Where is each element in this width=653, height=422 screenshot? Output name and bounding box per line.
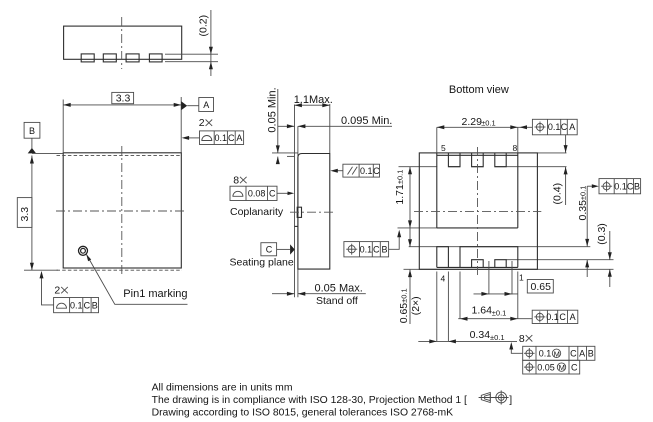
svg-text:0.1: 0.1 <box>215 133 228 143</box>
svg-text:0.1: 0.1 <box>360 244 373 254</box>
svg-text:2: 2 <box>54 285 60 297</box>
svg-text:C: C <box>373 166 380 176</box>
svg-text:M: M <box>559 363 565 372</box>
svg-text:C: C <box>627 181 634 191</box>
svg-text:Coplanarity: Coplanarity <box>230 206 284 218</box>
svg-text:2.29: 2.29 <box>462 116 483 128</box>
svg-text:The drawing is in compliance w: The drawing is in compliance with ISO 12… <box>152 395 467 406</box>
svg-text:0.1: 0.1 <box>548 122 561 132</box>
svg-text:0.05: 0.05 <box>537 362 555 372</box>
svg-text:A: A <box>236 133 242 143</box>
svg-text:8: 8 <box>519 333 525 345</box>
svg-text:C: C <box>571 362 578 372</box>
svg-text:C: C <box>570 349 577 359</box>
svg-text:]: ] <box>509 395 512 406</box>
svg-text:3.3: 3.3 <box>19 207 31 222</box>
svg-text:C: C <box>228 133 235 143</box>
svg-text:0.05 Min.: 0.05 Min. <box>267 87 279 132</box>
svg-text:1.71±0.1: 1.71±0.1 <box>394 170 406 205</box>
svg-text:Pin1 marking: Pin1 marking <box>123 288 187 300</box>
svg-text:B: B <box>634 181 640 191</box>
svg-text:8: 8 <box>513 143 518 153</box>
svg-text:0.65: 0.65 <box>531 281 552 293</box>
svg-text:3.3: 3.3 <box>116 93 131 105</box>
svg-text:0.08: 0.08 <box>248 189 266 199</box>
svg-text:0.1: 0.1 <box>360 166 373 176</box>
svg-text:±0.1: ±0.1 <box>481 118 496 127</box>
svg-text:1: 1 <box>519 272 524 282</box>
svg-text:0.095 Min.: 0.095 Min. <box>341 115 392 127</box>
svg-text:(0.3): (0.3) <box>596 223 608 245</box>
svg-text:C: C <box>373 244 380 254</box>
svg-text:4: 4 <box>441 273 446 283</box>
svg-text:A: A <box>579 349 585 359</box>
svg-text:Drawing according to ISO 8015,: Drawing according to ISO 8015, general t… <box>152 408 454 419</box>
svg-text:±0.1: ±0.1 <box>492 309 507 318</box>
svg-text:5: 5 <box>441 143 446 153</box>
svg-text:C: C <box>561 122 568 132</box>
svg-text:0.1: 0.1 <box>539 349 552 359</box>
svg-text:0.1: 0.1 <box>70 300 83 310</box>
svg-text:C: C <box>559 312 566 322</box>
svg-text:8: 8 <box>233 175 239 187</box>
svg-text:0.65±0.1: 0.65±0.1 <box>398 288 410 323</box>
svg-text:(0.2): (0.2) <box>198 15 210 37</box>
svg-text:B: B <box>381 244 387 254</box>
svg-text:C: C <box>84 300 91 310</box>
svg-text:A: A <box>569 122 575 132</box>
svg-text:Seating plane: Seating plane <box>230 257 294 269</box>
svg-text:B: B <box>29 126 35 136</box>
svg-text:A: A <box>203 100 209 110</box>
svg-text:(2×): (2×) <box>410 296 422 315</box>
svg-text:(0.4): (0.4) <box>552 183 564 205</box>
svg-text:B: B <box>588 349 594 359</box>
svg-text:±0.1: ±0.1 <box>490 333 505 342</box>
svg-text:1.64: 1.64 <box>472 305 493 317</box>
svg-text:Stand off: Stand off <box>316 295 358 307</box>
svg-text:M: M <box>554 349 560 358</box>
svg-text:A: A <box>570 312 576 322</box>
svg-text:C: C <box>266 245 273 255</box>
svg-text:B: B <box>92 300 98 310</box>
svg-text:0.1: 0.1 <box>546 312 559 322</box>
svg-text:C: C <box>269 189 276 199</box>
svg-text:0.34: 0.34 <box>470 329 491 341</box>
svg-text:All dimensions are in units mm: All dimensions are in units mm <box>152 383 293 394</box>
svg-text:2: 2 <box>199 117 205 129</box>
svg-text:Bottom view: Bottom view <box>449 84 509 96</box>
svg-text:0.05 Max.: 0.05 Max. <box>315 282 363 294</box>
svg-text:0.1: 0.1 <box>614 181 627 191</box>
